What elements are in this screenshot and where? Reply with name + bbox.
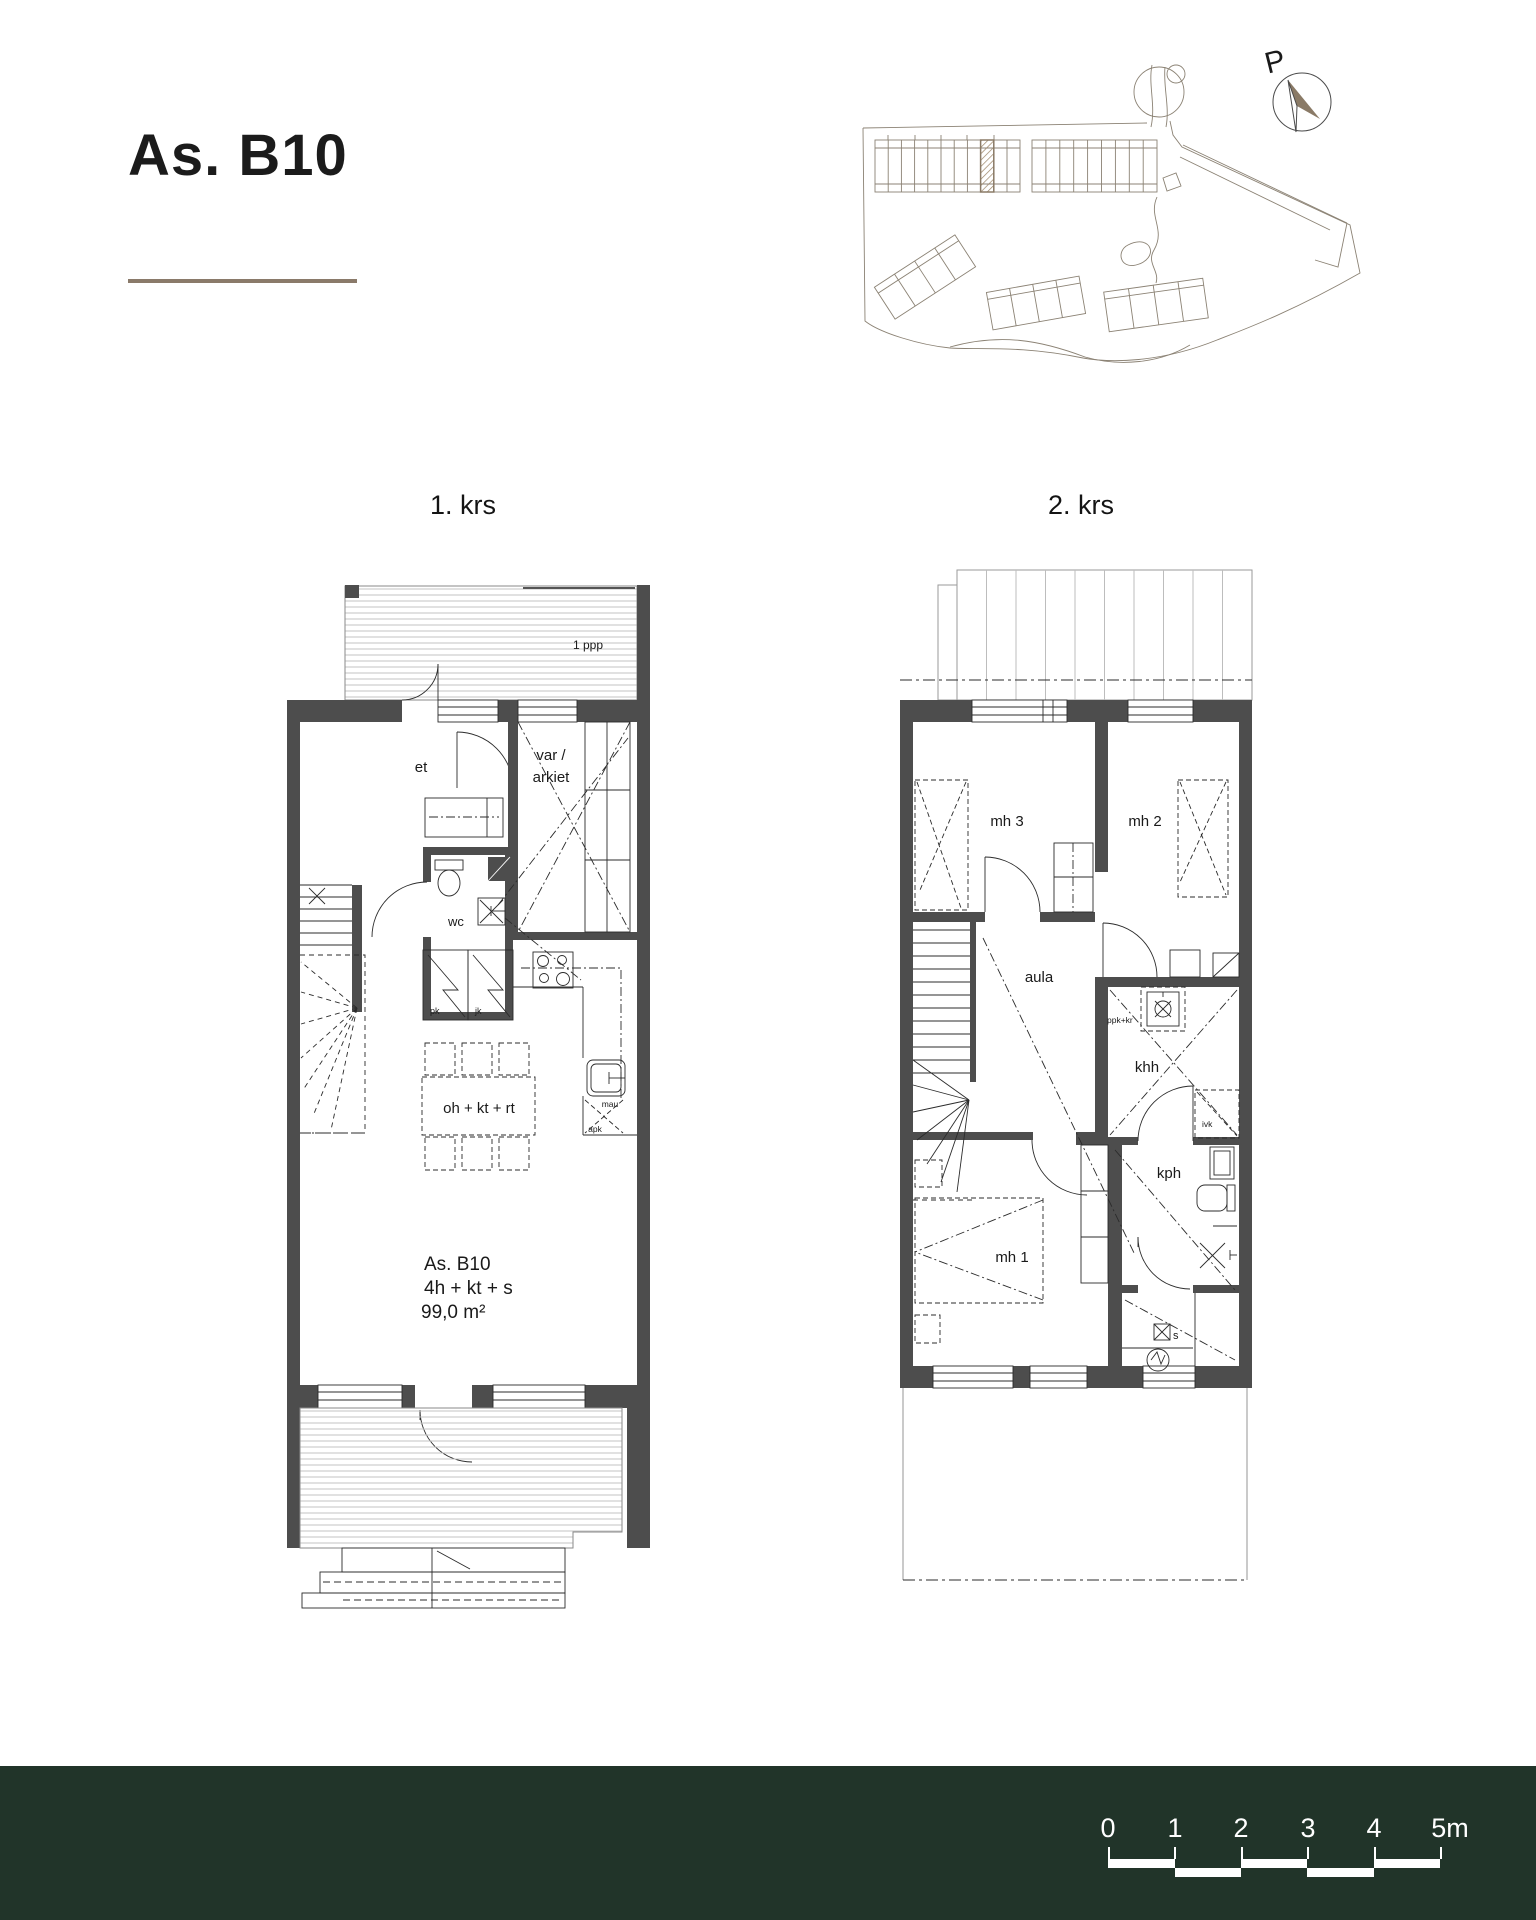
terrace-steps	[302, 1548, 565, 1608]
scale-bar-segment	[1307, 1868, 1374, 1877]
floor1-plan: 1 ppp	[283, 580, 655, 1615]
floor2-roof	[900, 570, 1252, 700]
floorplan-page: As. B10	[0, 0, 1536, 1920]
apartment-area: 99,0 m²	[421, 1302, 485, 1323]
appliance-label-mau: mau	[602, 1099, 619, 1109]
room-label-sauna: s	[1173, 1330, 1179, 1342]
room-label-wc: wc	[447, 914, 464, 929]
site-boundary	[863, 65, 1360, 361]
appliance-label-pk: pk	[430, 1006, 440, 1016]
highlighted-unit	[981, 140, 994, 192]
room-label-bedroom2: mh 2	[1128, 813, 1161, 830]
floor2-stairs	[913, 922, 976, 1200]
scale-number-3: 3	[1300, 1814, 1315, 1844]
floor2-plan: mh 3 mh 2 aula ppk+kr khh ivk kph mh 1 s	[895, 560, 1275, 1595]
deck-label: 1 ppp	[573, 638, 603, 652]
scale-tick	[1108, 1847, 1110, 1859]
annotation-ivk: ivk	[1202, 1119, 1213, 1129]
floor2-interior	[903, 722, 1247, 1580]
beds	[915, 780, 1228, 1343]
room-label-storage-1: var /	[536, 747, 566, 764]
annotation-ppk-kr: ppk+kr	[1107, 1015, 1133, 1025]
floor1-stairs	[300, 885, 365, 1133]
room-label-hall: aula	[1025, 969, 1054, 986]
scale-bar-segment	[1241, 1859, 1307, 1868]
page-title: As. B10	[128, 126, 348, 187]
scale-bar: 0 1 2 3 4 5m	[1100, 1814, 1480, 1884]
room-label-living: oh + kt + rt	[443, 1100, 516, 1117]
floor1-front-deck: 1 ppp	[345, 585, 637, 700]
scale-bar-segment	[1175, 1868, 1241, 1877]
scale-bar-segment	[1108, 1859, 1175, 1868]
scale-tick	[1241, 1847, 1243, 1859]
scale-tick	[1174, 1847, 1176, 1859]
room-label-bathroom: kph	[1157, 1165, 1181, 1182]
room-label-bedroom1: mh 1	[995, 1249, 1028, 1266]
room-label-storage-2: arkiet	[533, 769, 571, 786]
floor1-terrace	[300, 1408, 622, 1548]
scale-number-0: 0	[1100, 1814, 1115, 1844]
floor1-label: 1. krs	[408, 490, 518, 521]
site-plan: P	[860, 45, 1420, 385]
scale-number-5m: 5m	[1431, 1814, 1469, 1844]
footer-band: 0 1 2 3 4 5m	[0, 1766, 1536, 1920]
scale-tick	[1374, 1847, 1376, 1859]
room-label-entry: et	[415, 759, 428, 776]
appliance-label-apk: apk	[588, 1124, 602, 1134]
north-label: P	[1262, 45, 1289, 81]
room-label-bedroom3: mh 3	[990, 813, 1023, 830]
appliance-label-jk: jk	[474, 1006, 482, 1016]
apartment-layout: 4h + kt + s	[424, 1278, 513, 1299]
scale-tick	[1440, 1847, 1442, 1859]
north-compass: P	[1262, 45, 1331, 132]
floor1-interior	[300, 722, 637, 1462]
floor2-label: 2. krs	[1026, 490, 1136, 521]
scale-bar-segment	[1374, 1859, 1440, 1868]
title-underline	[128, 279, 357, 283]
floor2-walls	[900, 700, 1252, 1388]
utility-room	[1095, 950, 1239, 1145]
scale-tick	[1307, 1847, 1309, 1859]
apartment-id: As. B10	[424, 1254, 491, 1275]
room-label-utility: khh	[1135, 1059, 1159, 1076]
sauna	[1122, 1293, 1235, 1371]
scale-number-1: 1	[1167, 1814, 1182, 1844]
scale-number-4: 4	[1366, 1814, 1381, 1844]
site-buildings	[874, 135, 1347, 362]
scale-number-2: 2	[1233, 1814, 1248, 1844]
